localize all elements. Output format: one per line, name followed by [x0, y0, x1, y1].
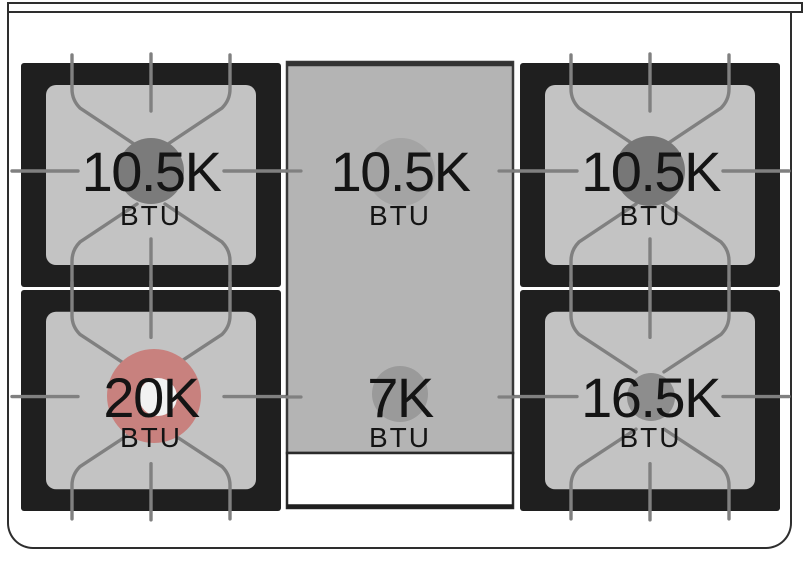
btu-value-center-rear: 10.5K: [287, 144, 513, 200]
btu-unit-front-left: BTU: [21, 424, 281, 452]
cooktop-diagram: 10.5K BTU 10.5K BTU 10.5K BTU 20K BTU 7K…: [0, 0, 810, 568]
btu-value-front-left: 20K: [21, 370, 281, 426]
cooktop-surface: [7, 13, 792, 549]
backguard-trim: [7, 2, 803, 13]
btu-unit-front-right: BTU: [520, 424, 781, 452]
btu-unit-center-rear: BTU: [287, 202, 513, 230]
btu-unit-rear-left: BTU: [21, 202, 281, 230]
btu-unit-center-front: BTU: [287, 424, 513, 452]
btu-value-front-right: 16.5K: [520, 370, 781, 426]
btu-unit-rear-right: BTU: [520, 202, 781, 230]
btu-value-center-front: 7K: [287, 370, 513, 426]
btu-value-rear-right: 10.5K: [520, 144, 781, 200]
btu-value-rear-left: 10.5K: [21, 144, 281, 200]
